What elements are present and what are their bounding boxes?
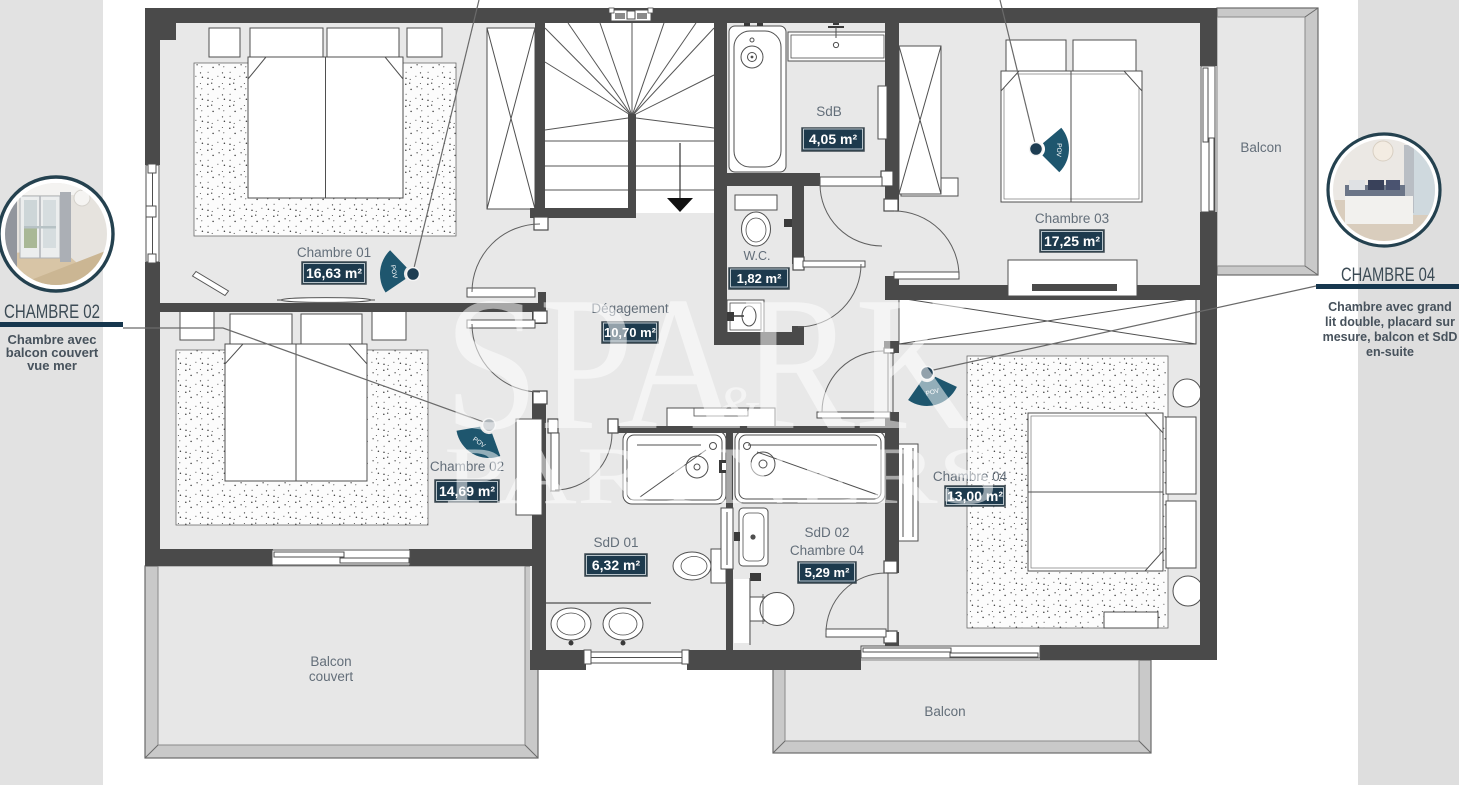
svg-text:6,32 m²: 6,32 m² <box>592 557 641 573</box>
svg-text:lit double, placard sur: lit double, placard sur <box>1325 315 1455 329</box>
svg-text:Balcon: Balcon <box>310 654 351 669</box>
svg-text:en-suite: en-suite <box>1366 345 1414 359</box>
svg-text:Balcon: Balcon <box>924 704 965 719</box>
svg-text:couvert: couvert <box>309 669 354 684</box>
svg-text:16,63 m²: 16,63 m² <box>306 265 362 281</box>
svg-text:SdB: SdB <box>816 104 842 119</box>
svg-text:4,05 m²: 4,05 m² <box>809 131 858 147</box>
svg-text:Chambre 01: Chambre 01 <box>297 245 371 260</box>
svg-text:PARTNERS: PARTNERS <box>444 430 1000 521</box>
svg-text:SdD 01: SdD 01 <box>593 535 638 550</box>
svg-text:POV: POV <box>1055 143 1062 158</box>
svg-text:Chambre 03: Chambre 03 <box>1035 211 1109 226</box>
svg-text:CHAMBRE 04: CHAMBRE 04 <box>1341 265 1435 286</box>
svg-text:17,25 m²: 17,25 m² <box>1044 233 1100 249</box>
svg-text:CHAMBRE 02: CHAMBRE 02 <box>4 302 100 323</box>
svg-text:5,29 m²: 5,29 m² <box>805 565 850 580</box>
svg-text:mesure, balcon et SdD: mesure, balcon et SdD <box>1323 330 1458 344</box>
svg-text:Balcon: Balcon <box>1240 140 1281 155</box>
svg-text:Chambre avec grand: Chambre avec grand <box>1328 300 1452 314</box>
svg-text:SdD 02: SdD 02 <box>804 525 849 540</box>
svg-text:Chambre 04: Chambre 04 <box>790 543 865 558</box>
svg-text:vue mer: vue mer <box>27 358 77 373</box>
